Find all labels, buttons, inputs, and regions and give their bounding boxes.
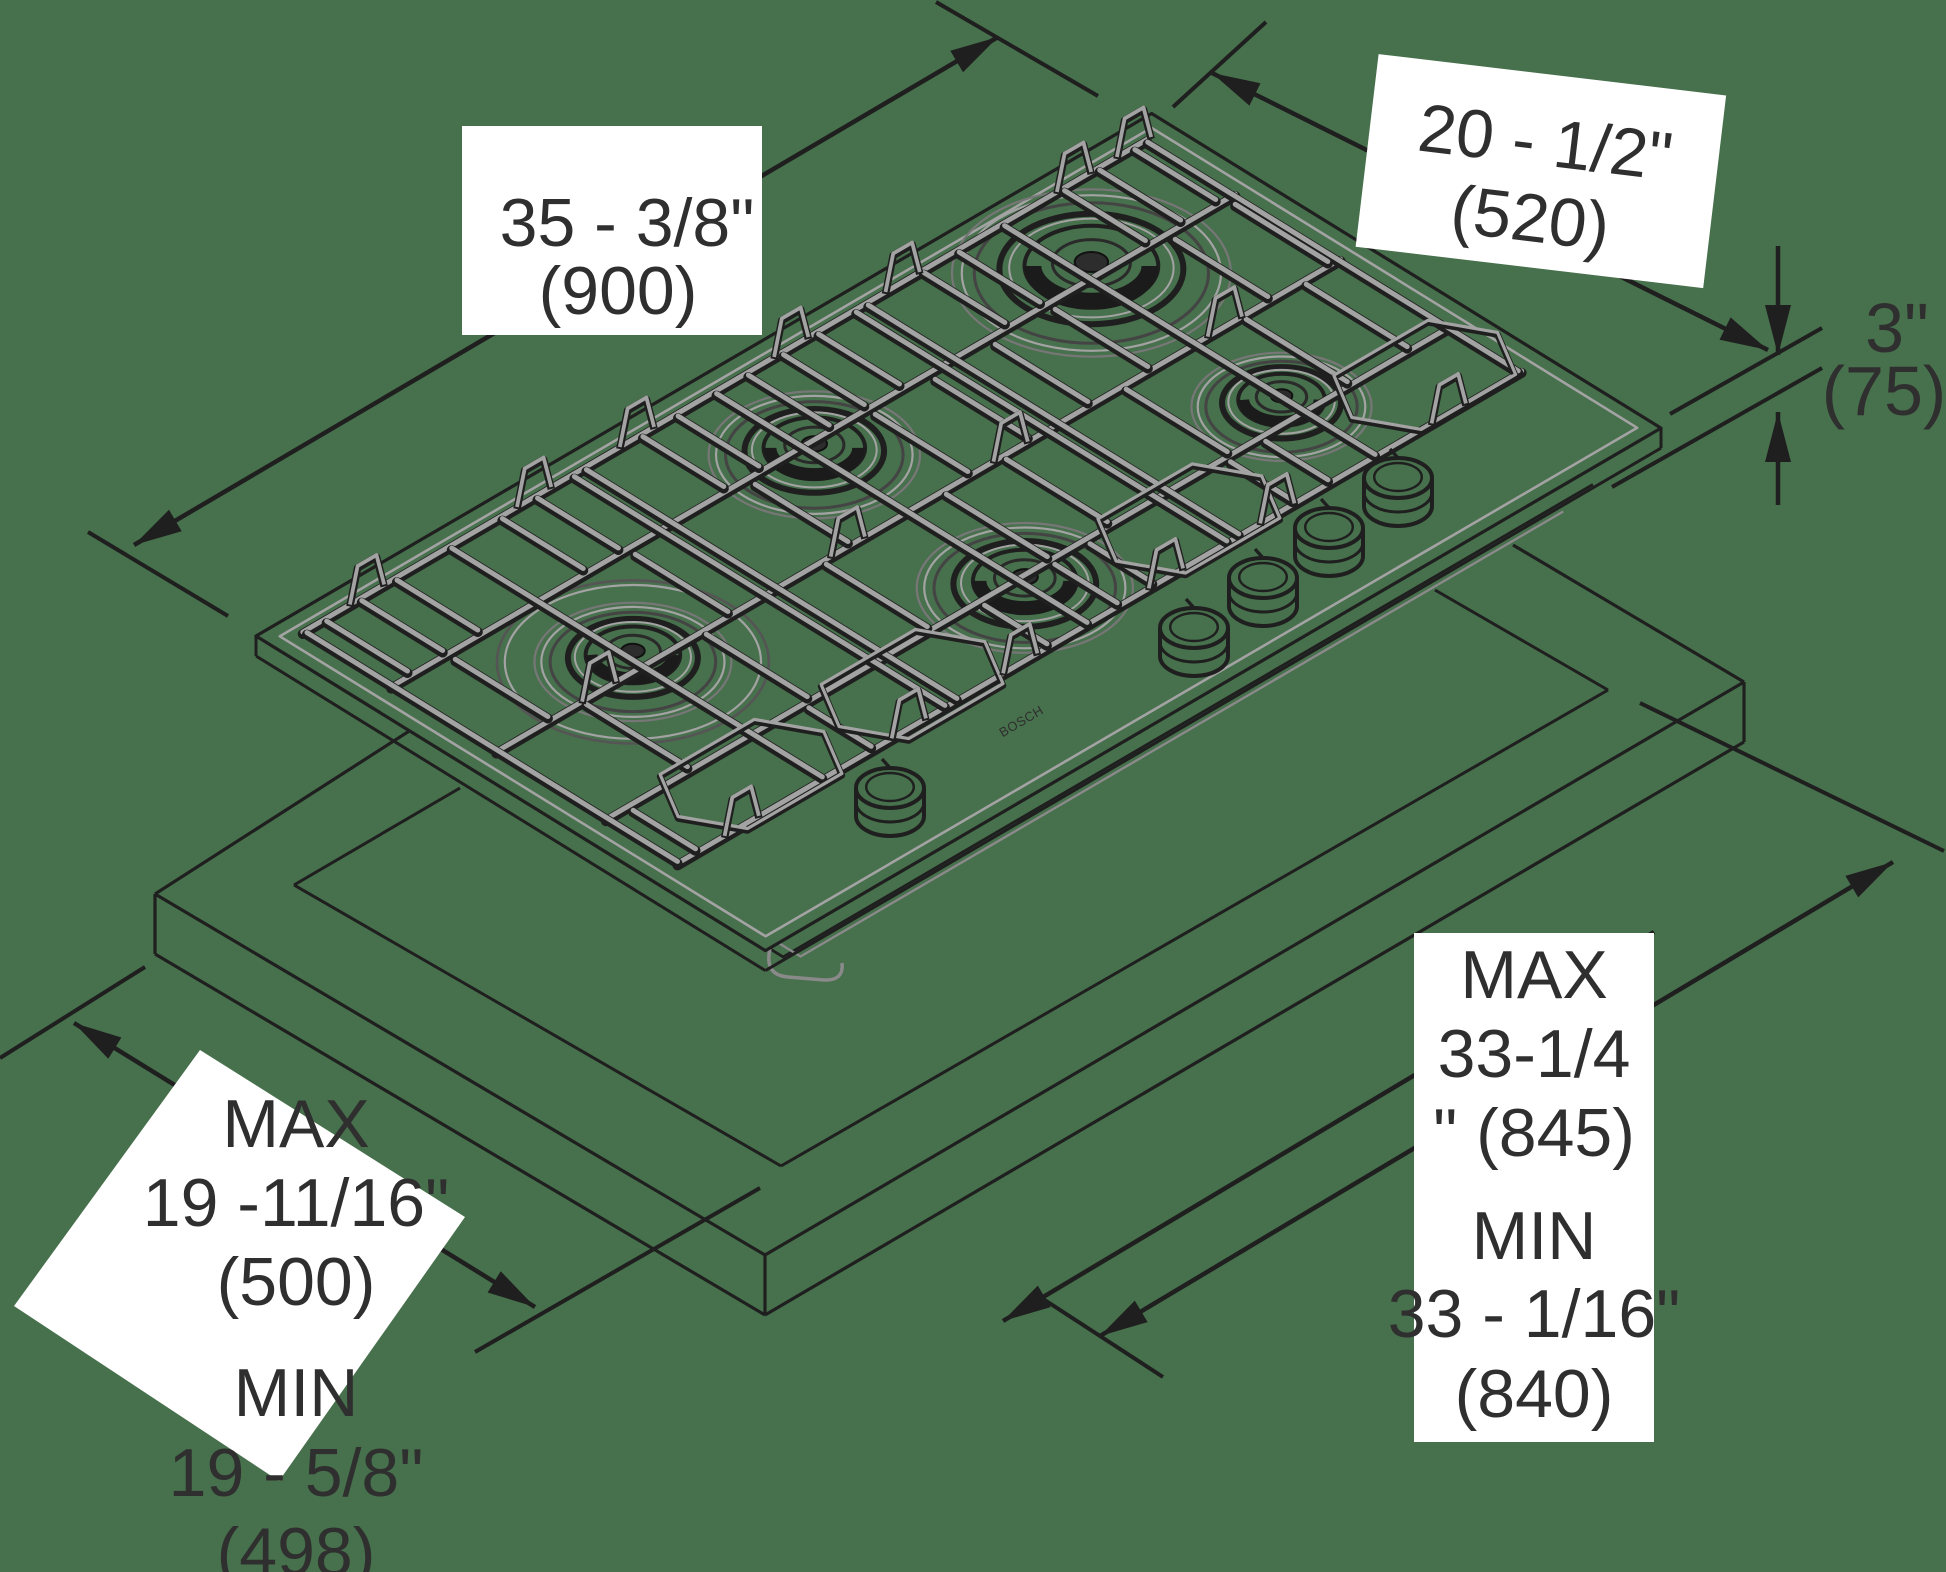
svg-text:(75): (75) (1822, 352, 1946, 430)
svg-text:MIN: MIN (1472, 1198, 1597, 1274)
svg-text:MAX: MAX (1460, 937, 1607, 1013)
svg-text:19 - 5/8": 19 - 5/8" (169, 1435, 424, 1511)
svg-text:33-1/4: 33-1/4 (1438, 1016, 1631, 1092)
svg-text:33 - 1/16": 33 - 1/16" (1388, 1276, 1681, 1352)
svg-text:35 - 3/8": 35 - 3/8" (500, 185, 755, 261)
svg-text:(498): (498) (217, 1514, 376, 1572)
svg-text:(840): (840) (1455, 1356, 1614, 1432)
svg-text:MIN: MIN (234, 1355, 359, 1431)
svg-text:MAX: MAX (222, 1086, 369, 1162)
svg-text:19 -11/16": 19 -11/16" (143, 1165, 449, 1241)
svg-text:" (845): " (845) (1433, 1095, 1635, 1171)
svg-text:(500): (500) (217, 1244, 376, 1320)
svg-text:(900): (900) (539, 253, 698, 329)
